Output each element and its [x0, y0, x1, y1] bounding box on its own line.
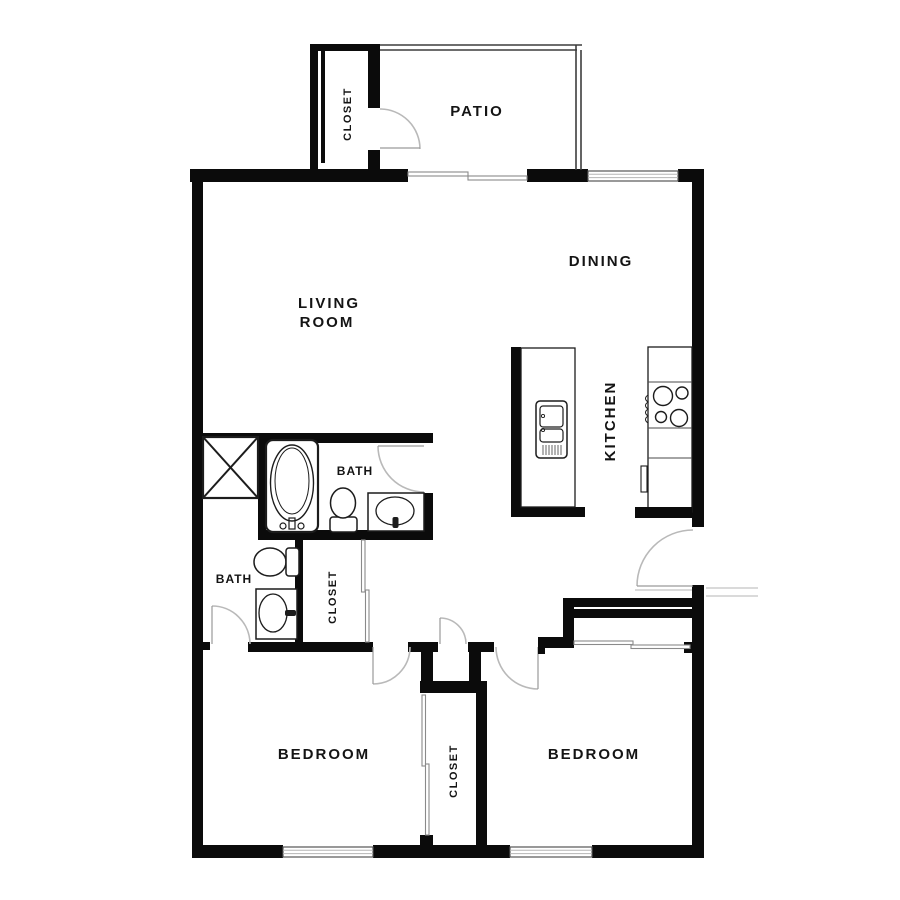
bedroom-left-door-arc [373, 647, 410, 684]
label-dining: DINING [569, 253, 634, 270]
bedroom-right-walls [538, 598, 692, 654]
linen-door-arc [440, 618, 466, 644]
patio-closet-door-arc [380, 109, 420, 149]
hall-wall-tick [198, 642, 210, 650]
laundry-closet [203, 437, 258, 498]
island-wall-vertical [511, 347, 521, 517]
hallway-partitions [373, 618, 538, 845]
hall-closet-slider-panel [362, 540, 366, 592]
entry-door-arc [637, 530, 693, 586]
stove-burner [676, 387, 688, 399]
dishwasher-handle [641, 466, 647, 492]
kitchen-stub-wall [635, 507, 692, 518]
bottom-wall-mid [373, 845, 510, 858]
patio-sliding-door-panel [408, 172, 468, 176]
island-wall-horizontal [511, 507, 585, 517]
label-patio: PATIO [450, 103, 504, 120]
label-bath-second: BATH [216, 572, 252, 586]
right-wall-upper [692, 169, 704, 527]
label-closet-hall: CLOSET [327, 570, 339, 624]
right-wall-lower [692, 585, 704, 858]
toilet-tank [330, 517, 357, 532]
label-living-line2: ROOM [300, 314, 355, 331]
closet-top-wall [420, 681, 487, 693]
bedroom-right-closet-slider [574, 641, 633, 645]
hall-stub-left [408, 642, 438, 652]
hall-stub-right [468, 642, 494, 652]
toilet-bowl [331, 488, 356, 518]
hall-top-wall [248, 642, 373, 652]
top-wall-left [190, 169, 408, 182]
label-closet-patio: CLOSET [342, 87, 354, 141]
bedroom-left-window [283, 847, 373, 857]
toilet-tank [286, 548, 299, 576]
patio-closet-wall-left [310, 44, 318, 173]
left-wall [192, 169, 203, 858]
floorplan-drawing: PATIO LIVING ROOM DINING KITCHEN BATH BA… [0, 0, 900, 900]
bottom-wall-left [192, 845, 283, 858]
bath-second-door-arc [212, 606, 250, 644]
bedroom-right-door-arc [496, 647, 538, 689]
top-wall-mid [527, 169, 588, 182]
patio-sliding-door-panel [468, 176, 527, 180]
toilet-bowl [254, 548, 286, 576]
sink-drainboard [543, 445, 561, 455]
stove-burner [671, 410, 688, 427]
label-bath-main: BATH [337, 464, 373, 478]
floorplan-canvas: PATIO LIVING ROOM DINING KITCHEN BATH BA… [0, 0, 900, 900]
stove-burner [656, 412, 667, 423]
bedroom-right-closet-slider [631, 645, 690, 649]
bedroom-right-stub-foot [538, 648, 545, 654]
patio-closet-wall-right [368, 51, 380, 108]
label-living-line1: LIVING [298, 295, 360, 312]
bottom-wall-right [592, 845, 704, 858]
patio-closet-wall-stub [368, 150, 380, 169]
vanity-faucet [393, 517, 399, 528]
label-closet-bedroom: CLOSET [448, 744, 460, 798]
patio-closet-wall-top [310, 44, 380, 51]
bedroom-closet-slider-panel [426, 764, 430, 835]
bedroom-right-top-wall-inner [570, 609, 692, 618]
kitchen-counter [648, 347, 692, 512]
patio-closet-wall-inner [321, 51, 325, 163]
vanity-faucet [285, 610, 296, 616]
laundry-separator-wall [258, 443, 266, 533]
label-kitchen: KITCHEN [602, 381, 619, 462]
dining-window [588, 171, 678, 181]
hall-stub-right-leg [469, 652, 481, 683]
bedroom-closet-slider-panel [422, 695, 426, 766]
hall-stub-left-leg [421, 652, 433, 683]
bedroom-right-top-wall-outer [563, 598, 692, 607]
closet-right-wall [476, 693, 487, 845]
label-bedroom-right: BEDROOM [548, 746, 640, 763]
bedroom-right-window [510, 847, 592, 857]
hall-closet-slider-panel [366, 590, 370, 642]
bath-main-door-arc [378, 446, 424, 492]
closet-bottom-stub [420, 835, 433, 845]
label-bedroom-left: BEDROOM [278, 746, 370, 763]
bath-second-fixtures [254, 548, 299, 639]
stove-burner [654, 387, 673, 406]
